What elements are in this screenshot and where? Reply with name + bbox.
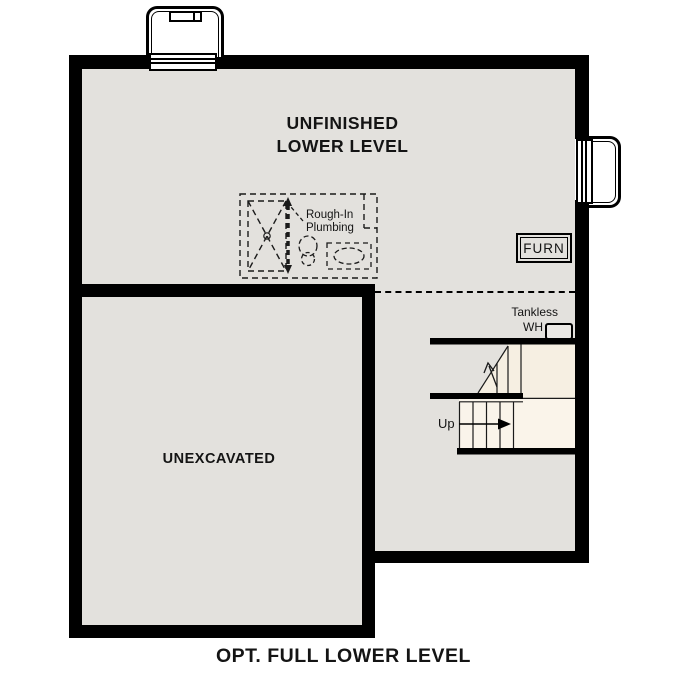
- egress-window-top: [149, 53, 217, 71]
- ladder-icon: [169, 11, 202, 22]
- exterior-wall-left: [69, 55, 82, 638]
- window-well-right-inner-line: [589, 141, 616, 203]
- exterior-wall-top-right: [213, 55, 589, 69]
- wall-between-room-and-unexcavated: [69, 284, 375, 297]
- furnace-label: FURN: [520, 237, 568, 259]
- rough-in-plumbing-label-line1: Rough-In: [306, 209, 353, 222]
- lower-room-bottom-wall: [362, 551, 589, 563]
- window-frame-line: [151, 62, 215, 64]
- dashed-partition-line: [375, 291, 575, 293]
- floor-plan: Rough-In Plumbing FURN Tankless WH: [0, 0, 687, 687]
- window-frame-line: [581, 141, 583, 202]
- upper-flight-area: [508, 344, 575, 393]
- rough-in-plumbing-label-line2: Plumbing: [306, 222, 354, 235]
- window-frame-line: [151, 58, 215, 60]
- shower-drain-icon: [264, 233, 270, 239]
- unfinished-room-title: UNFINISHED LOWER LEVEL: [240, 112, 445, 158]
- egress-window-right: [576, 139, 593, 204]
- window-frame-line: [585, 141, 587, 202]
- stair-wall-middle: [430, 393, 523, 399]
- furnace-box: FURN: [516, 233, 572, 263]
- tub-rough-in-icon: [334, 248, 364, 264]
- stair-wall-bottom: [457, 448, 575, 455]
- stair-wall-top: [430, 338, 575, 345]
- plan-caption: OPT. FULL LOWER LEVEL: [0, 645, 687, 668]
- unexcavated-right-wall: [362, 284, 375, 638]
- stairs-up-label: Up: [438, 416, 455, 431]
- unexcavated-bottom-wall: [69, 625, 375, 638]
- tankless-wh-label-line1: Tankless: [480, 305, 558, 319]
- unexcavated-label: UNEXCAVATED: [119, 451, 319, 467]
- window-well-top: [146, 6, 224, 57]
- plumbing-stack-arrow-icon: [284, 265, 292, 274]
- rough-in-plumbing-group: [235, 190, 385, 285]
- ladder-rung: [193, 13, 195, 20]
- window-well-right: [589, 136, 621, 208]
- unfinished-room-title-line2: LOWER LEVEL: [240, 135, 445, 158]
- stairs-group: [420, 330, 590, 460]
- exterior-wall-right-upper: [575, 55, 589, 139]
- unfinished-room-title-line1: UNFINISHED: [240, 112, 445, 135]
- label-leader-line: [291, 207, 303, 221]
